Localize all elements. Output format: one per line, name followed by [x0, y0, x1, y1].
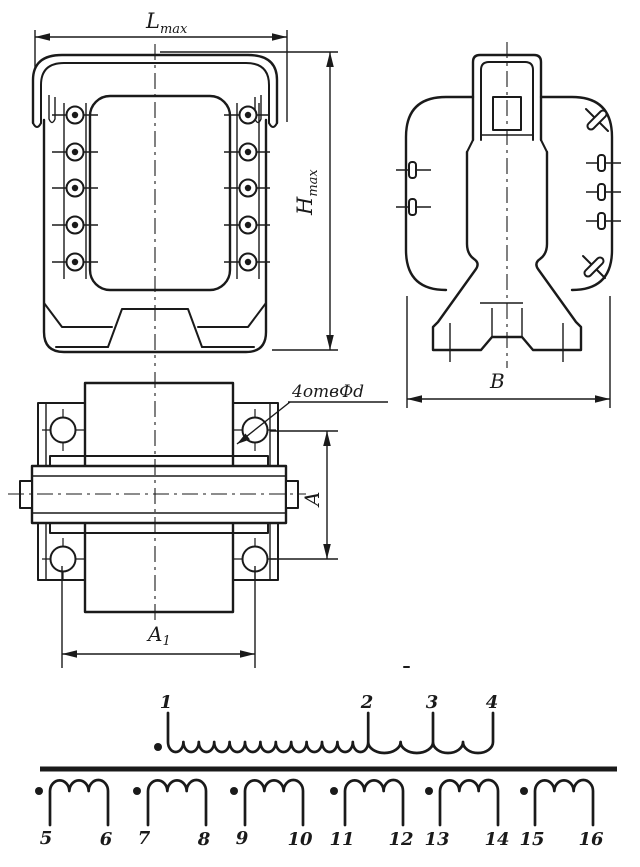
dimension-b-label: В	[489, 369, 505, 393]
secondary-winding: 9 10	[230, 780, 313, 850]
secondary-winding: 15 16	[519, 780, 604, 850]
dimension-lmax: Lmax	[35, 9, 287, 122]
side-body-left	[406, 97, 473, 290]
phase-dot	[230, 787, 238, 795]
terminal-label-8: 8	[197, 829, 211, 850]
arrowhead-left	[407, 395, 422, 403]
dimension-a1: A1	[62, 566, 255, 668]
pin-edge	[586, 155, 621, 171]
arrowhead-up	[326, 52, 334, 67]
terminal-label-6: 6	[100, 829, 113, 850]
phase-dot	[520, 787, 528, 795]
phase-dot	[330, 787, 338, 795]
dimension-b: В	[407, 296, 610, 408]
transformer-drawing: Lmax	[0, 0, 640, 867]
primary-winding: 1 2 3 4	[154, 692, 498, 753]
pin-edge	[396, 162, 431, 178]
terminal-label-1: 1	[160, 692, 173, 713]
dimension-lmax-label: Lmax	[145, 9, 188, 37]
terminal-label-9: 9	[236, 828, 249, 849]
secondary-winding: 13 14	[424, 780, 509, 850]
terminal-label-4: 4	[486, 692, 499, 713]
dimension-hmax-label: Hmax	[293, 169, 321, 216]
terminal-label-2: 2	[360, 692, 374, 713]
primary-coil	[168, 713, 493, 753]
terminal-label-10: 10	[287, 829, 313, 850]
plan-view: 4отвФd A A1	[8, 372, 388, 668]
mounting-hole	[42, 409, 84, 451]
secondary-winding: 11 12	[329, 780, 413, 850]
arrowhead-left	[35, 33, 50, 41]
pin-edge	[586, 213, 621, 229]
arrowhead-down	[326, 335, 334, 350]
arrowhead-down	[323, 544, 331, 559]
arrowhead-left	[62, 650, 77, 658]
arrowhead-right	[240, 650, 255, 658]
bobbin-window	[90, 96, 230, 290]
terminal-label-12: 12	[388, 829, 413, 850]
side-pins-right	[586, 155, 621, 229]
phase-dot	[35, 787, 43, 795]
phase-dot	[425, 787, 433, 795]
dimension-a-label: A	[300, 492, 324, 508]
secondary-winding: 7 8	[133, 780, 211, 850]
terminal-label-16: 16	[578, 829, 604, 850]
winding-schematic: 1 2 3 4 5 6 7 8 9 10 11	[35, 692, 617, 850]
crossed-pin-mark-top	[586, 109, 608, 131]
terminal-label-11: 11	[329, 829, 354, 850]
arrowhead-up	[323, 431, 331, 446]
drawing-sheet: Lmax	[0, 0, 640, 867]
terminal-label-7: 7	[138, 828, 151, 849]
side-view: В	[396, 42, 621, 408]
dimension-a1-label: A1	[146, 622, 171, 649]
arrowhead-right	[272, 33, 287, 41]
secondary-winding: 5 6	[35, 780, 113, 850]
holes-note-label: 4отвФd	[291, 382, 364, 402]
phase-dot	[154, 743, 162, 751]
mounting-hole	[42, 538, 84, 580]
pin-edge	[396, 199, 431, 215]
terminal-label-5: 5	[40, 828, 53, 849]
crossed-pin-mark-bottom	[583, 256, 605, 278]
pin-edge	[586, 184, 621, 200]
phase-dot	[133, 787, 141, 795]
terminal-label-13: 13	[424, 829, 449, 850]
terminal-label-3: 3	[426, 692, 439, 713]
arrowhead-right	[595, 395, 610, 403]
terminal-label-15: 15	[519, 829, 544, 850]
terminal-label-14: 14	[484, 829, 509, 850]
front-view: Lmax	[33, 9, 338, 366]
side-pins-left	[396, 162, 431, 215]
